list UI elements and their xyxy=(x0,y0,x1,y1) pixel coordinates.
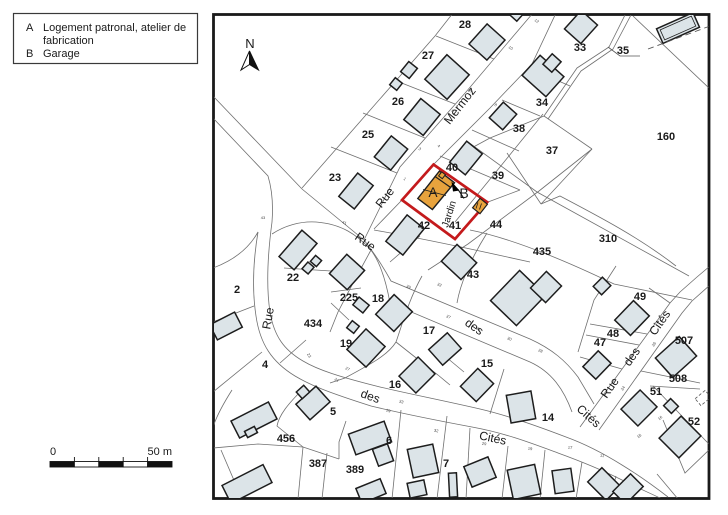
svg-text:6: 6 xyxy=(386,435,392,447)
svg-text:40: 40 xyxy=(446,162,458,174)
svg-text:2: 2 xyxy=(234,284,240,296)
svg-text:25: 25 xyxy=(362,129,374,141)
svg-text:456: 456 xyxy=(277,433,295,445)
svg-text:A: A xyxy=(428,185,437,200)
svg-text:507: 507 xyxy=(675,335,693,347)
svg-text:52: 52 xyxy=(688,416,700,428)
svg-text:434: 434 xyxy=(304,318,323,330)
svg-text:18: 18 xyxy=(372,293,384,305)
svg-text:38: 38 xyxy=(513,123,525,135)
svg-text:27: 27 xyxy=(422,50,434,62)
svg-text:49: 49 xyxy=(634,291,646,303)
svg-text:225: 225 xyxy=(340,292,358,304)
svg-text:508: 508 xyxy=(669,373,687,385)
svg-text:15: 15 xyxy=(481,358,493,370)
svg-text:435: 435 xyxy=(533,246,551,258)
svg-text:26: 26 xyxy=(392,96,404,108)
svg-text:5: 5 xyxy=(330,406,336,418)
svg-text:17: 17 xyxy=(423,325,435,337)
svg-text:33: 33 xyxy=(574,42,586,54)
svg-text:37: 37 xyxy=(546,145,558,157)
svg-text:16: 16 xyxy=(389,379,401,391)
svg-text:22: 22 xyxy=(287,272,299,284)
svg-text:39: 39 xyxy=(492,170,504,182)
svg-text:0: 0 xyxy=(50,446,56,458)
svg-text:42: 42 xyxy=(418,220,430,232)
svg-text:310: 310 xyxy=(599,233,617,245)
svg-text:44: 44 xyxy=(490,219,503,231)
svg-text:160: 160 xyxy=(657,131,675,143)
svg-text:28: 28 xyxy=(459,19,471,31)
svg-text:47: 47 xyxy=(594,337,606,349)
svg-text:389: 389 xyxy=(346,464,364,476)
svg-text:Garage: Garage xyxy=(43,48,80,60)
svg-text:B: B xyxy=(26,48,33,60)
svg-text:7: 7 xyxy=(443,458,449,470)
svg-text:B: B xyxy=(459,185,468,201)
svg-text:4: 4 xyxy=(262,359,269,371)
svg-text:Logement patronal, atelier de: Logement patronal, atelier de xyxy=(43,22,186,34)
svg-text:51: 51 xyxy=(650,386,662,398)
svg-text:41: 41 xyxy=(449,220,461,232)
svg-text:48: 48 xyxy=(607,328,619,340)
svg-text:A: A xyxy=(26,22,34,34)
svg-text:387: 387 xyxy=(309,458,327,470)
svg-text:34: 34 xyxy=(536,97,549,109)
svg-text:14: 14 xyxy=(542,412,555,424)
svg-text:N: N xyxy=(245,36,254,51)
svg-text:fabrication: fabrication xyxy=(43,35,94,47)
svg-text:23: 23 xyxy=(329,172,341,184)
svg-text:43: 43 xyxy=(467,269,479,281)
svg-text:50 m: 50 m xyxy=(148,446,172,458)
svg-text:19: 19 xyxy=(340,338,352,350)
svg-text:43: 43 xyxy=(261,215,266,220)
